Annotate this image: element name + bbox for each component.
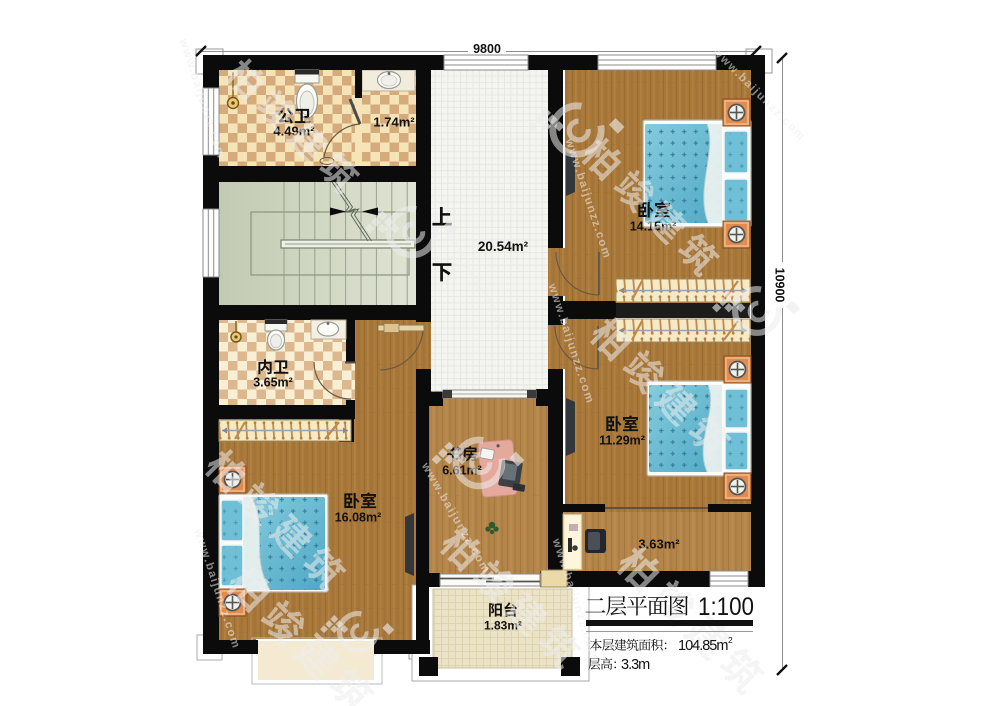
svg-text:3.65m²: 3.65m² (253, 376, 293, 390)
svg-text:16.08m²: 16.08m² (335, 511, 382, 525)
svg-text:9800: 9800 (473, 42, 501, 56)
svg-text:104.85m: 104.85m (678, 638, 728, 654)
svg-text:2: 2 (728, 635, 733, 645)
svg-text:10900: 10900 (773, 268, 787, 303)
svg-text:1.74m²: 1.74m² (373, 115, 415, 130)
svg-text:11.29m²: 11.29m² (599, 434, 645, 448)
svg-text:20.54m²: 20.54m² (478, 239, 529, 254)
svg-text:1:100: 1:100 (698, 593, 754, 621)
svg-text:3.3m: 3.3m (621, 657, 650, 673)
